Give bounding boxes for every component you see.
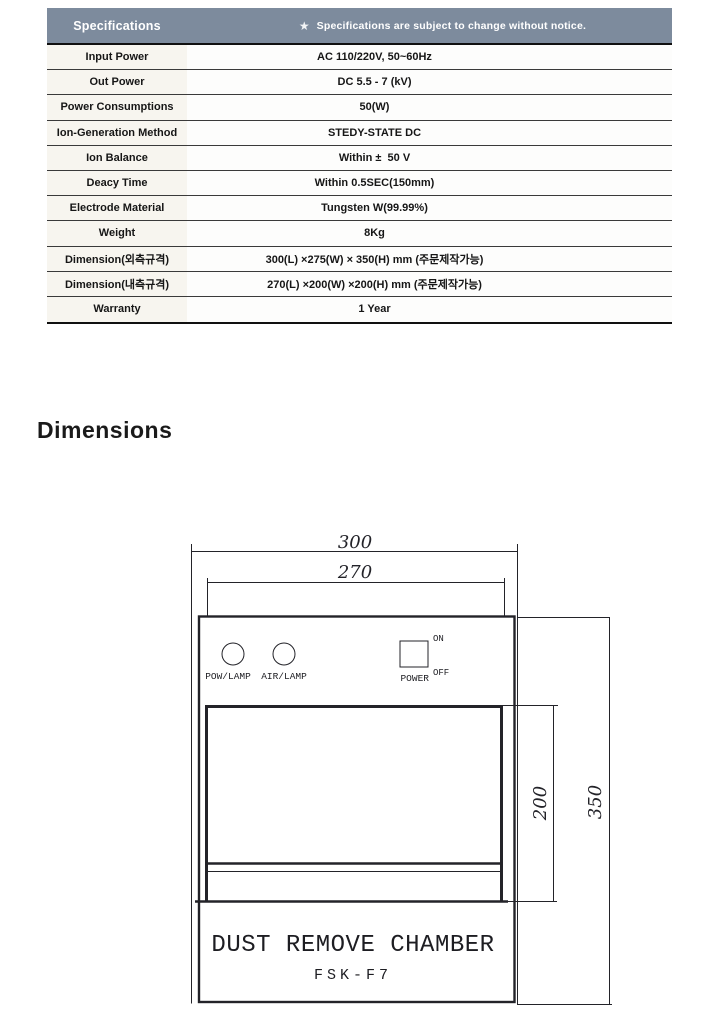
spec-table-notice: ★ Specifications are subject to change w… <box>187 8 672 43</box>
page-title: Dimensions <box>37 417 172 444</box>
dim-300: 300 <box>192 532 517 553</box>
dim-270-lid: 270 <box>207 562 505 616</box>
dim-270-label: 270 <box>337 562 372 583</box>
table-row: Dimension(외측규격) 300(L) ×275(W) × 350(H) … <box>47 247 672 272</box>
power-switch <box>400 641 428 667</box>
spec-table-notice-text: Specifications are subject to change wit… <box>317 20 586 32</box>
row-value: DC 5.5 - 7 (kV) <box>187 70 672 94</box>
row-label: Warranty <box>47 297 187 322</box>
dim-350: 350 <box>585 785 606 819</box>
row-value: 50(W) <box>187 95 672 119</box>
control-panel: POW/LAMP AIR/LAMP ON OFF POWER <box>205 634 449 684</box>
row-label: Electrode Material <box>47 196 187 220</box>
dimensions-diagram: 300 270 POW/LAMP AIR/LAMP ON OFF POWER <box>0 520 718 1032</box>
row-label: Weight <box>47 221 187 245</box>
product-name: DUST REMOVE CHAMBER <box>211 932 494 959</box>
product-model: FSK-F7 <box>314 967 392 984</box>
table-row: Power Consumptions 50(W) <box>47 95 672 120</box>
table-row: Deacy Time Within 0.5SEC(150mm) <box>47 171 672 196</box>
power-on-label: ON <box>433 634 444 644</box>
dim-200: 200 <box>503 706 558 902</box>
pow-lamp-label: POW/LAMP <box>205 671 251 682</box>
dim-350-label: 350 <box>585 785 606 819</box>
row-value: 8Kg <box>187 221 672 245</box>
nameplate: DUST REMOVE CHAMBER FSK-F7 <box>211 932 494 984</box>
spec-table: Specifications ★ Specifications are subj… <box>47 8 672 324</box>
page: Specifications ★ Specifications are subj… <box>0 0 718 1032</box>
row-label: Deacy Time <box>47 171 187 195</box>
row-label: Out Power <box>47 70 187 94</box>
row-value: 300(L) ×275(W) × 350(H) mm (주문제작가능) <box>187 247 672 271</box>
row-value: Tungsten W(99.99%) <box>187 196 672 220</box>
row-value: STEDY-STATE DC <box>187 121 672 145</box>
star-icon: ★ <box>299 19 310 33</box>
air-lamp-label: AIR/LAMP <box>261 671 307 682</box>
chamber-opening <box>195 705 508 902</box>
table-row: Dimension(내측규격) 270(L) ×200(W) ×200(H) m… <box>47 272 672 297</box>
spec-table-header: Specifications ★ Specifications are subj… <box>47 8 672 45</box>
row-value: Within ± 50 V <box>187 146 672 170</box>
air-lamp-icon <box>273 643 295 665</box>
table-row: Ion Balance Within ± 50 V <box>47 146 672 171</box>
table-row: Input Power AC 110/220V, 50~60Hz <box>47 45 672 70</box>
row-label: Ion-Generation Method <box>47 121 187 145</box>
spec-table-title: Specifications <box>47 8 187 43</box>
table-row: Ion-Generation Method STEDY-STATE DC <box>47 121 672 146</box>
row-value: Within 0.5SEC(150mm) <box>187 171 672 195</box>
row-value: AC 110/220V, 50~60Hz <box>187 45 672 69</box>
dim-300-label: 300 <box>338 532 372 553</box>
row-label: Power Consumptions <box>47 95 187 119</box>
power-label: POWER <box>400 673 429 684</box>
table-row: Out Power DC 5.5 - 7 (kV) <box>47 70 672 95</box>
table-row: Warranty 1 Year <box>47 297 672 322</box>
row-label: Dimension(외측규격) <box>47 247 187 271</box>
power-off-label: OFF <box>433 668 449 678</box>
table-row: Electrode Material Tungsten W(99.99%) <box>47 196 672 221</box>
spec-table-body: Input Power AC 110/220V, 50~60Hz Out Pow… <box>47 45 672 324</box>
dim-200-label: 200 <box>530 786 551 821</box>
row-value: 270(L) ×200(W) ×200(H) mm (주문제작가능) <box>187 272 672 296</box>
row-label: Input Power <box>47 45 187 69</box>
pow-lamp-icon <box>222 643 244 665</box>
table-row: Weight 8Kg <box>47 221 672 246</box>
row-value: 1 Year <box>187 297 672 322</box>
row-label: Dimension(내측규격) <box>47 272 187 296</box>
row-label: Ion Balance <box>47 146 187 170</box>
